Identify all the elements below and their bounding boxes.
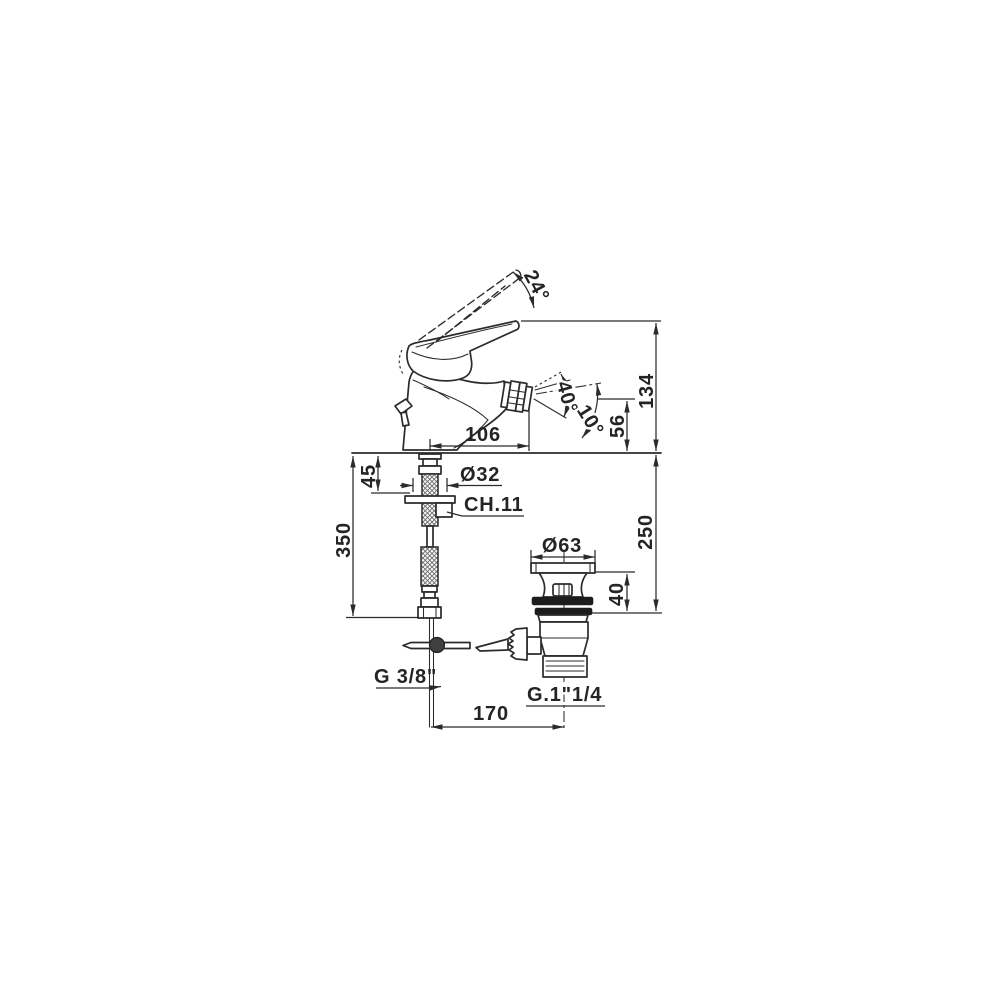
dim-label-waste-dia: Ø63 <box>542 535 582 557</box>
dim-label-waste-thread: G.1"1/4 <box>527 684 602 706</box>
knurled-nut <box>508 628 527 660</box>
dim-label-inlet-thread: G 3/8" <box>374 666 437 688</box>
dim-label-wrench: CH.11 <box>464 494 524 516</box>
technical-drawing: 24° 134 56 40° 10° 106 45 Ø32 CH.11 350 … <box>0 0 1000 1000</box>
dim-label-deck-thickness: 45 <box>358 464 380 488</box>
dim-label-hole-dia: Ø32 <box>460 464 500 486</box>
gasket-lower <box>535 608 592 615</box>
dim-label-spout-height: 56 <box>607 414 629 438</box>
rod-port <box>527 637 541 654</box>
hose-hex-nut <box>418 607 441 618</box>
dim-label-spout-reach: 106 <box>465 424 501 446</box>
dim-label-overall-height: 134 <box>636 373 658 409</box>
dim-label-centres: 170 <box>473 703 509 725</box>
washer <box>405 496 455 503</box>
locknut-ch11 <box>436 503 452 517</box>
dim-label-hose-length: 350 <box>333 522 355 558</box>
waste-flange <box>531 563 595 573</box>
dim-label-under-depth: 250 <box>635 514 657 550</box>
flexible-hose <box>421 547 438 586</box>
dim-label-waste-height: 40 <box>606 582 628 606</box>
rod-ball-joint <box>430 638 445 653</box>
gasket-upper <box>532 597 593 605</box>
waste-body <box>540 622 588 656</box>
